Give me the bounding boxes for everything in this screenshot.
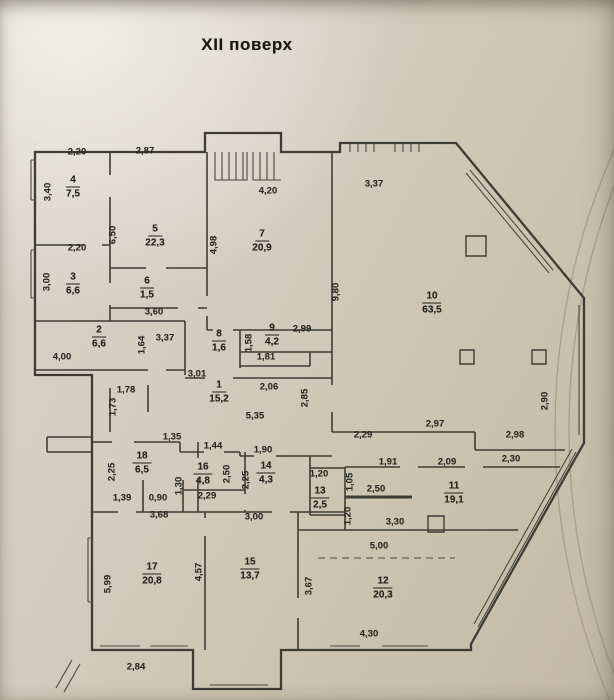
dimension-label: 1,73: [108, 398, 119, 417]
room-label: 1513,7: [240, 555, 259, 582]
dimension-label: 4,20: [259, 186, 278, 197]
dimension-label: 4,57: [194, 563, 205, 582]
dimension-label: 2,98: [506, 430, 525, 441]
room-area: 2,5: [310, 499, 329, 511]
room-area: 1,6: [212, 342, 226, 354]
dimension-label: 2,25: [241, 471, 252, 490]
room-area: 6,6: [92, 338, 106, 350]
dimension-label: 5,35: [246, 411, 265, 422]
room-label: 720,9: [252, 227, 271, 254]
dimension-label: 4,98: [209, 236, 220, 255]
room-number: 18: [132, 451, 151, 464]
room-number: 17: [142, 562, 161, 575]
dimension-label: 2,29: [354, 430, 373, 441]
dimension-label: 2,25: [107, 463, 118, 482]
floor-plan-photo: XII поверх 115,226,636,647,5522,361,5720…: [0, 0, 614, 700]
dimension-label: 4,30: [360, 629, 379, 640]
room-number: 12: [373, 576, 392, 589]
room-number: 1: [212, 380, 226, 393]
room-label: 36,6: [66, 270, 80, 297]
dimension-label: 1,44: [204, 441, 223, 452]
room-label: 1063,5: [422, 289, 441, 316]
room-number: 8: [212, 329, 226, 342]
room-label: 132,5: [310, 484, 329, 511]
room-label: 26,6: [92, 323, 106, 350]
dimension-label: 2,30: [502, 454, 521, 465]
dimension-label: 2,20: [68, 147, 87, 158]
dimension-label: 5,00: [370, 541, 389, 552]
dimension-label: 1,05: [345, 473, 356, 492]
dimension-label: 1,58: [244, 334, 255, 353]
room-label: 1119,1: [444, 479, 463, 506]
room-number: 11: [445, 481, 464, 494]
floor-plan-title: XII поверх: [201, 35, 292, 55]
dimension-label: 1,78: [117, 385, 136, 396]
dimension-label: 1,20: [310, 469, 329, 480]
dimension-label: 5,99: [103, 575, 114, 594]
room-area: 6,6: [66, 285, 80, 297]
room-label: 115,2: [209, 378, 228, 405]
dimension-label: 3,30: [386, 517, 405, 528]
dimension-label: 2,87: [136, 146, 155, 157]
dimension-label: 2,99: [293, 324, 312, 335]
dimension-label: 1,81: [257, 352, 276, 363]
room-area: 20,8: [142, 575, 161, 587]
dimension-label: 2,50: [367, 484, 386, 495]
room-area: 4,2: [265, 336, 279, 348]
room-number: 9: [265, 323, 279, 336]
dimension-label: 3,00: [42, 273, 53, 292]
dimension-label: 3,40: [43, 183, 54, 202]
room-area: 4,3: [256, 474, 275, 486]
dimension-label: 2,85: [300, 389, 311, 408]
room-area: 20,3: [373, 589, 392, 601]
dimension-label: 4,00: [53, 352, 72, 363]
room-label: 186,5: [132, 449, 151, 476]
room-number: 7: [255, 229, 269, 242]
dimension-label: 2,90: [540, 392, 551, 411]
dimension-label: 2,84: [127, 662, 146, 673]
dimension-label: 1,64: [137, 336, 148, 355]
room-area: 19,1: [444, 494, 463, 506]
dimension-label: 1,91: [379, 457, 398, 468]
dimension-label: 1,35: [163, 432, 182, 443]
dimension-label: 2,06: [260, 382, 279, 393]
dimension-label: 6,50: [108, 226, 119, 245]
room-label: 1220,3: [373, 574, 392, 601]
room-number: 5: [148, 224, 162, 237]
room-number: 2: [92, 325, 106, 338]
dimension-label: 3,37: [365, 179, 384, 190]
room-number: 16: [193, 462, 212, 475]
dimension-label: 1,39: [113, 493, 132, 504]
room-area: 63,5: [422, 304, 441, 316]
room-label: 47,5: [66, 173, 80, 200]
room-label: 144,3: [256, 459, 275, 486]
room-label: 164,8: [193, 460, 212, 487]
room-area: 22,3: [145, 237, 164, 249]
dimension-label: 3,67: [304, 577, 315, 596]
dimension-label: 2,50: [222, 465, 233, 484]
dimension-label: 3,60: [145, 307, 164, 318]
room-number: 3: [66, 272, 80, 285]
dimension-label: 2,29: [198, 491, 217, 502]
dimension-label: 3,68: [150, 510, 169, 521]
dimension-label: 1,20: [343, 507, 354, 526]
room-area: 13,7: [240, 570, 259, 582]
room-label: 81,6: [212, 327, 226, 354]
dimension-label: 2,09: [438, 457, 457, 468]
room-label: 61,5: [140, 274, 154, 301]
room-label: 522,3: [145, 222, 164, 249]
room-area: 6,5: [132, 464, 151, 476]
room-number: 6: [140, 276, 154, 289]
dimension-label: 1,30: [174, 477, 185, 496]
room-number: 14: [256, 461, 275, 474]
dimension-label: 0,90: [149, 493, 168, 504]
room-area: 15,2: [209, 393, 228, 405]
room-area: 1,5: [140, 289, 154, 301]
room-number: 15: [240, 557, 259, 570]
room-area: 4,8: [193, 475, 212, 487]
dimension-label: 2,97: [426, 419, 445, 430]
dimension-label: 2,20: [68, 243, 87, 254]
dimension-label: 9,80: [331, 283, 342, 302]
dimension-label: 3,01: [188, 369, 207, 380]
room-number: 10: [422, 291, 441, 304]
dimension-label: 3,00: [245, 512, 264, 523]
dimension-label: 3,37: [156, 333, 175, 344]
room-label: 94,2: [265, 321, 279, 348]
dimension-label: 1,90: [254, 445, 273, 456]
room-label: 1720,8: [142, 560, 161, 587]
room-number: 13: [310, 486, 329, 499]
room-area: 7,5: [66, 188, 80, 200]
room-number: 4: [66, 175, 80, 188]
room-area: 20,9: [252, 242, 271, 254]
